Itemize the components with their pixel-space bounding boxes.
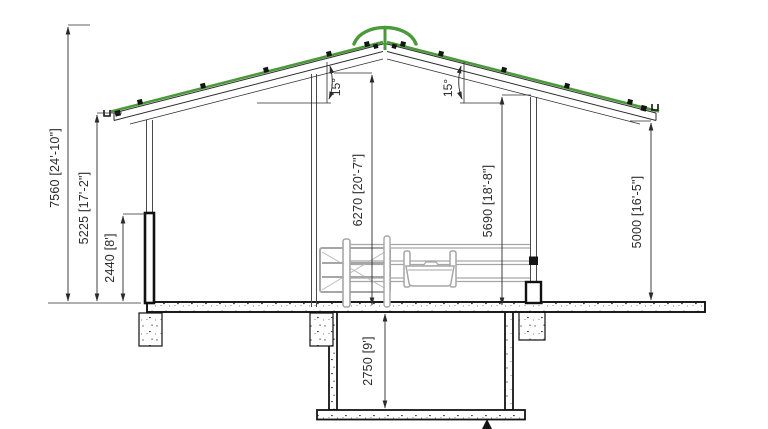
left-wall [145, 120, 154, 303]
dim-label-lower-wall-height: 2440 [8'] [103, 233, 117, 282]
trough-basin [406, 266, 454, 286]
water-trough [404, 251, 456, 287]
dim-right-clearance [502, 95, 531, 305]
center-post [384, 236, 390, 307]
dim-lower-wall-height [123, 214, 146, 301]
section-marker-arrow [482, 419, 492, 429]
dim-label-pit-depth: 2750 [9'] [361, 336, 375, 385]
floor-slab [147, 302, 705, 312]
post-pedestal [526, 282, 541, 303]
dim-label-left-clearance: 6270 [20'-7"] [351, 154, 365, 227]
footing-left [139, 313, 162, 346]
ground-floor-slab [147, 302, 705, 312]
dim-label-eave-height: 5225 [17'-2"] [77, 172, 91, 245]
footing-center-right [519, 312, 545, 340]
roof-sheet [111, 42, 659, 112]
eave-gutters [104, 104, 658, 117]
roof [104, 41, 659, 124]
angle-left [257, 62, 332, 103]
footings [139, 312, 545, 346]
pit-floor-slab [317, 410, 525, 420]
post-bracket [529, 257, 538, 266]
dimensions [48, 25, 651, 408]
dim-label-right-clearance: 5690 [18'-8"] [481, 165, 495, 238]
lower-wall-panel [145, 213, 154, 303]
dim-label-overall-height: 7560 [24'-10"] [48, 128, 62, 208]
angle-label-left: 15° [329, 78, 343, 96]
dim-label-open-side: 5000 [16'-5"] [630, 176, 644, 249]
drawing-svg: 7560 [24'-10"] 5225 [17'-2"] 2440 [8'] 6… [0, 0, 768, 429]
pit-wall-right [505, 310, 513, 410]
manure-pit [317, 310, 525, 420]
gate [320, 236, 390, 307]
gate-post [343, 239, 350, 307]
cross-section-drawing: 7560 [24'-10"] 5225 [17'-2"] 2440 [8'] 6… [0, 0, 768, 429]
angle-label-right: 15° [441, 79, 455, 97]
footing-center-left [310, 313, 333, 346]
dim-overall-height [68, 25, 90, 301]
